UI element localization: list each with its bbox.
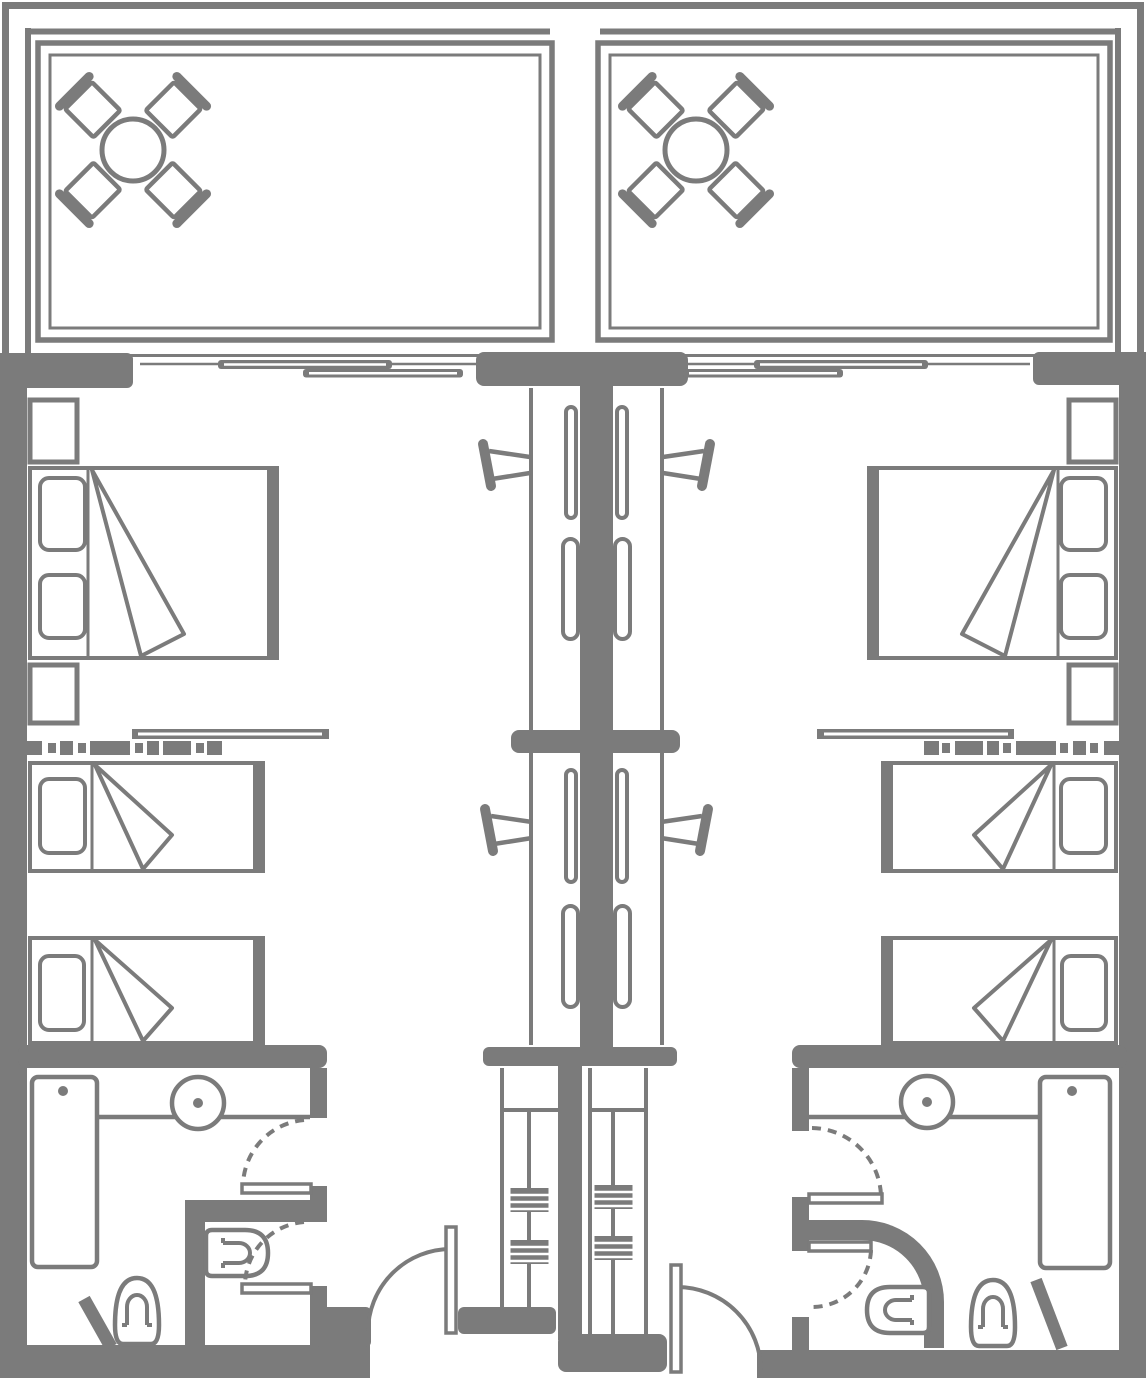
- desk-wardrobe-left: Desk and wardrobe unit (left room): [483, 388, 578, 1045]
- balcony-left: Balcony (left room) Round table with fou…: [38, 43, 552, 340]
- dining-set: Round table with four chairs: [622, 76, 769, 223]
- shower: Shower: [1040, 1077, 1110, 1268]
- toilet: Toilet: [971, 1280, 1015, 1346]
- bathroom-door: Bathroom door: [242, 1120, 311, 1193]
- entry-door-left: Entry door (left room): [368, 1227, 456, 1333]
- dining-set: Round table with four chairs: [59, 76, 206, 223]
- room-right-furniture: Right room furniture: beds, nightstands,…: [817, 400, 1119, 1043]
- floor-plan-drawing: Twin hotel guest room floor plan: [0, 0, 1146, 1378]
- closet-left: Closet shelves (left): [458, 1068, 558, 1334]
- sliding-door-right: Sliding glass balcony door (right room): [683, 360, 1030, 378]
- shower: Shower: [32, 1077, 97, 1267]
- front-wall: Walls: [0, 352, 1146, 388]
- wc-door: WC compartment door: [809, 1242, 871, 1307]
- wc-toilet: Wall-hung toilet in WC compartment: [867, 1287, 929, 1333]
- closet-right: Closet shelves (right): [590, 1068, 646, 1340]
- bathroom-left: Bathroom (left room) Washbasin Shower To…: [18, 1045, 327, 1347]
- balcony-right: Balcony (right room) Round table with fo…: [598, 43, 1110, 340]
- sink: Washbasin: [901, 1076, 953, 1128]
- room-left-furniture: Left room furniture: beds, nightstands, …: [27, 400, 329, 1043]
- bathroom-door: Bathroom door: [809, 1128, 882, 1203]
- sink: Washbasin: [172, 1077, 224, 1129]
- sliding-door-left: Sliding glass balcony door (left room): [140, 360, 478, 378]
- toilet: Toilet: [115, 1278, 159, 1344]
- floor-plan-page: Twin hotel guest room floor plan: [0, 0, 1146, 1378]
- wc-toilet: Wall-hung toilet in WC compartment: [206, 1230, 268, 1276]
- desk-wardrobe-right: Desk and wardrobe unit (right room): [615, 388, 710, 1045]
- bathroom-right: Bathroom (right room) Washbasin Shower W…: [792, 1045, 1127, 1353]
- entry-door-right: Entry door (right room): [671, 1265, 761, 1372]
